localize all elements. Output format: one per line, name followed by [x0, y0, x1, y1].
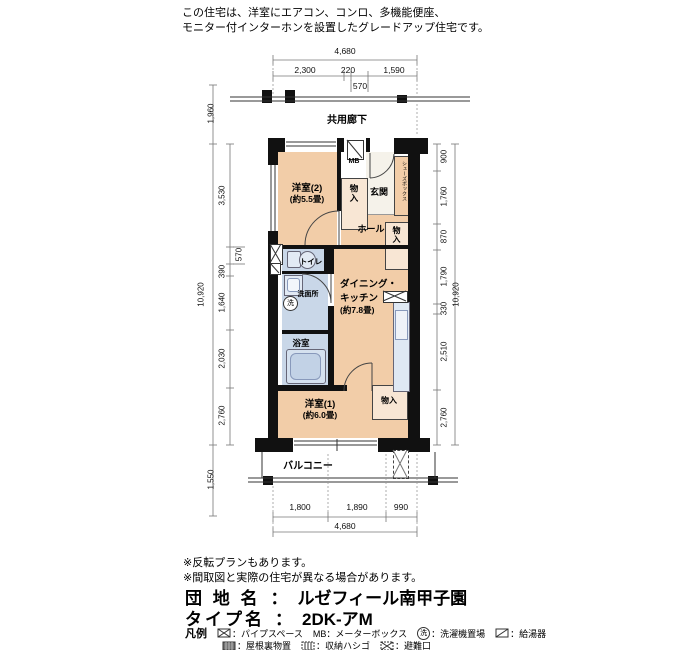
legend-title: 凡例 [185, 625, 207, 641]
legend-item-escape-hatch: ：避難口 [380, 639, 431, 650]
wall-dk-yoshitsu1 [278, 385, 347, 391]
dim-top-seg-2: 220 [336, 65, 360, 75]
dim-top-total: 4,680 [315, 46, 375, 56]
balcony-label: バルコニー [278, 457, 338, 472]
header-line-2: モニター付インターホンを設置したグレードアップ住宅です。 [182, 19, 489, 35]
dim-right-seg-5: 330 [440, 287, 449, 331]
dim-bottom-seg-1: 1,800 [280, 502, 320, 512]
legend-label: ：洗濯機置場 [431, 627, 485, 640]
dim-right-seg-7: 2,760 [440, 396, 449, 440]
dim-top-sub: 570 [348, 81, 372, 91]
closet-hall-label: 物入 [391, 226, 402, 244]
escape-hatch-icon [380, 641, 394, 650]
yoshitsu2-name: 洋室(2) [277, 180, 337, 194]
dim-bottom-total: 4,680 [315, 521, 375, 531]
note-1: ※反転プランもあります。 [183, 554, 312, 570]
floor-plan-page: この住宅は、洋室にエアコン、コンロ、多機能便座、 モニター付インターホンを設置し… [0, 0, 700, 650]
yoshitsu2-size: (約5.5畳) [277, 193, 337, 205]
corridor-block [397, 95, 407, 103]
legend-item-storage-ladder: ：収納ハシゴ [301, 639, 370, 650]
dim-left-seg-2: 570 [235, 240, 244, 270]
wall-hall-bottom [278, 245, 408, 249]
legend-item-water-heater: ：給湯器 [495, 627, 546, 640]
pipe-space-icon [217, 628, 231, 638]
closet-yoshitsu1-label: 物入 [372, 395, 406, 406]
pipe-space-box [270, 244, 283, 265]
wall-toilet-washroom [282, 271, 324, 274]
dim-left-seg-4: 1,640 [218, 281, 227, 325]
attic-storage-icon [222, 641, 236, 650]
dim-right-total: 10,920 [452, 273, 461, 317]
water-heater-box [383, 291, 408, 303]
toilet-label: トイレ [296, 256, 326, 267]
wall-washroom-bath [282, 330, 328, 334]
dim-left-seg-6: 2,760 [218, 394, 227, 438]
kitchen-sink [395, 310, 408, 340]
storage-ladder-icon [301, 641, 315, 650]
meter-box-symbol [347, 140, 364, 160]
dim-left-seg-1: 3,530 [218, 174, 227, 218]
balcony-post-right [428, 476, 438, 485]
water-heater-box-small [270, 263, 281, 275]
dim-right-seg-1: 900 [440, 135, 449, 179]
dim-top-seg-1: 2,300 [285, 65, 325, 75]
balcony-post-left [263, 476, 273, 485]
yoshitsu1-size: (約6.0畳) [290, 409, 350, 421]
dk-size: (約7.8畳) [340, 304, 374, 316]
header-line-1: この住宅は、洋室にエアコン、コンロ、多機能便座、 [182, 4, 445, 20]
legend-item-pipe-space: ：パイプスペース [217, 627, 303, 640]
dim-left-total: 10,920 [197, 273, 206, 317]
hall-label: ホール [351, 222, 391, 235]
genkan-floor [366, 152, 394, 215]
legend-label: ：避難口 [395, 639, 431, 650]
dim-top-seg-3: 1,590 [374, 65, 414, 75]
yoshitsu1-name: 洋室(1) [290, 396, 350, 410]
legend-label: MB：メーターボックス [313, 627, 407, 640]
washroom-label: 洗面所 [294, 289, 322, 299]
laundry-circle-icon: 洗 [417, 627, 430, 640]
meter-box-label: MB [343, 158, 365, 165]
shoes-box-label: シューズボックス [396, 161, 407, 211]
dim-right-seg-2: 1,760 [440, 175, 449, 219]
dim-left-seg-5: 2,030 [218, 337, 227, 381]
wall-left-a [268, 138, 278, 165]
legend-item-attic-storage: ：屋根裏物置 [222, 639, 291, 650]
wall-wet-dk [328, 306, 334, 385]
water-heater-icon [495, 628, 509, 638]
dk-label-2: キッチン [340, 290, 378, 304]
dim-right-seg-6: 2,510 [440, 330, 449, 374]
legend-row-2: ：屋根裏物置 ：収納ハシゴ ：避難口 [222, 639, 431, 650]
wall-right [408, 138, 420, 452]
wall-yoshitsu2-right [337, 152, 341, 211]
legend-item-laundry: 洗 ：洗濯機置場 [417, 627, 485, 640]
escape-hatch [393, 450, 409, 479]
dim-right-seg-3: 870 [440, 215, 449, 259]
dim-bottom-seg-3: 990 [385, 502, 417, 512]
wall-top-c [366, 138, 370, 152]
corridor-label: 共用廊下 [317, 111, 377, 126]
wall-top-b [337, 138, 344, 152]
legend-item-meter-box: MB：メーターボックス [313, 627, 407, 640]
corridor-post-left [262, 90, 272, 103]
dim-bottom-seg-2: 1,890 [337, 502, 377, 512]
dk-label-1: ダイニング・ [340, 276, 397, 290]
legend-label: ：給湯器 [510, 627, 546, 640]
dim-left-outer-bottom: 1,550 [207, 458, 216, 502]
closet-top-label: 物入 [348, 184, 359, 203]
bath-label: 浴室 [287, 337, 315, 349]
legend-label: ：屋根裏物置 [237, 639, 291, 650]
legend-label: ：パイプスペース [232, 627, 303, 640]
genkan-label: 玄関 [364, 185, 394, 198]
wall-bottom-a [255, 438, 293, 452]
corridor-post-right [285, 90, 295, 103]
note-2: ※間取図と実際の住宅が異なる場合があります。 [183, 569, 422, 585]
dim-left-outer-top: 1,960 [207, 92, 216, 136]
bathtub-inner [290, 353, 321, 380]
legend-label: ：収納ハシゴ [316, 639, 370, 650]
